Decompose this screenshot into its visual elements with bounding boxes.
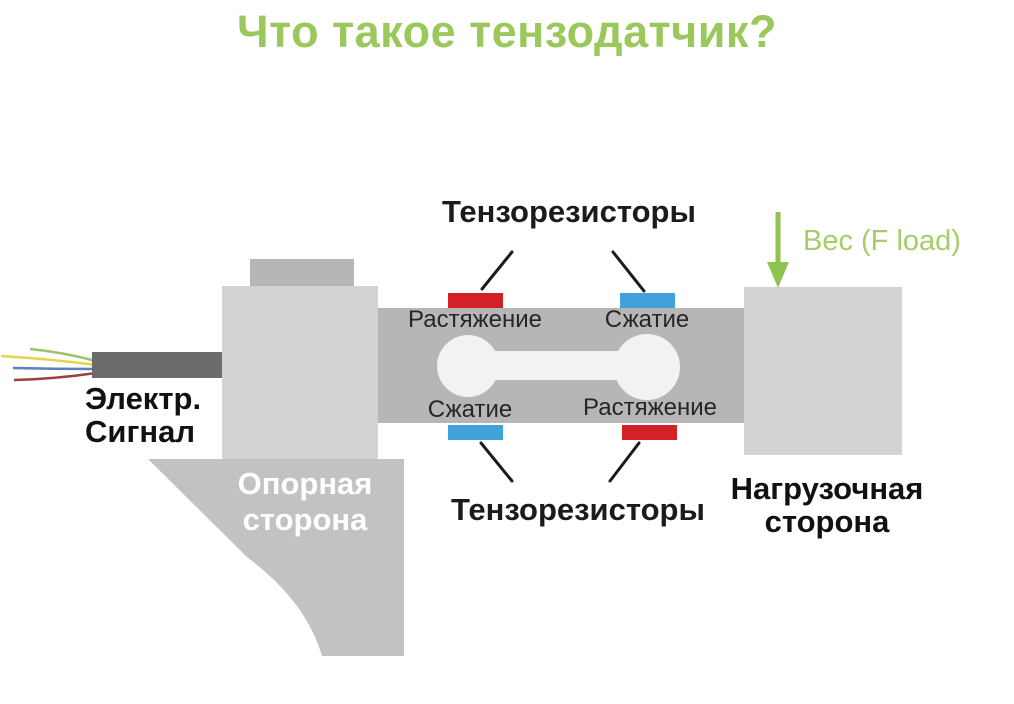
gauge-label-tension-top: Растяжение xyxy=(408,307,542,332)
flexure-cutout-left-hole xyxy=(437,335,499,397)
support-side-line1: Опорная xyxy=(238,466,373,502)
pointer-line-bottom-left xyxy=(481,443,512,481)
support-side-line2: сторона xyxy=(238,502,373,538)
electric-signal-line2: Сигнал xyxy=(85,415,201,448)
electric-signal-line1: Электр. xyxy=(85,382,201,415)
load-side-line2: сторона xyxy=(731,505,924,538)
weight-arrow-head-icon xyxy=(767,262,789,288)
pointer-line-bottom-right xyxy=(610,443,639,481)
pointer-line-top-left xyxy=(482,252,512,289)
support-block-boss xyxy=(250,259,354,287)
load-side-line1: Нагрузочная xyxy=(731,472,924,505)
load-block xyxy=(744,287,902,455)
load-cell-diagram xyxy=(0,0,1014,704)
strain-gauges-label-bottom: Тензорезисторы xyxy=(451,494,705,527)
gauge-label-compression-top: Сжатие xyxy=(605,307,689,332)
page-title: Что такое тензодатчик? xyxy=(0,8,1014,55)
strain-gauges-label-top: Тензорезисторы xyxy=(442,196,696,229)
signal-wire-blue xyxy=(13,368,96,369)
signal-wire-maroon xyxy=(14,373,96,380)
support-side-label: Опорная сторона xyxy=(238,466,373,538)
load-side-label: Нагрузочная сторона xyxy=(731,472,924,538)
strain-gauge-bottom-right-red xyxy=(622,425,677,440)
flexure-cutout-right-hole xyxy=(614,334,680,400)
strain-gauge-bottom-left-blue xyxy=(448,425,503,440)
gauge-label-compression-bottom: Сжатие xyxy=(428,397,512,422)
pointer-line-top-right xyxy=(613,252,644,291)
support-block xyxy=(222,286,378,459)
signal-cable xyxy=(92,352,225,378)
electric-signal-label: Электр. Сигнал xyxy=(85,382,201,448)
gauge-label-tension-bottom: Растяжение xyxy=(583,395,717,420)
weight-force-label: Вес (F load) xyxy=(803,226,961,256)
load-cell-infographic: Что такое тензодатчик? Тензорезисторы Ра… xyxy=(0,0,1014,704)
